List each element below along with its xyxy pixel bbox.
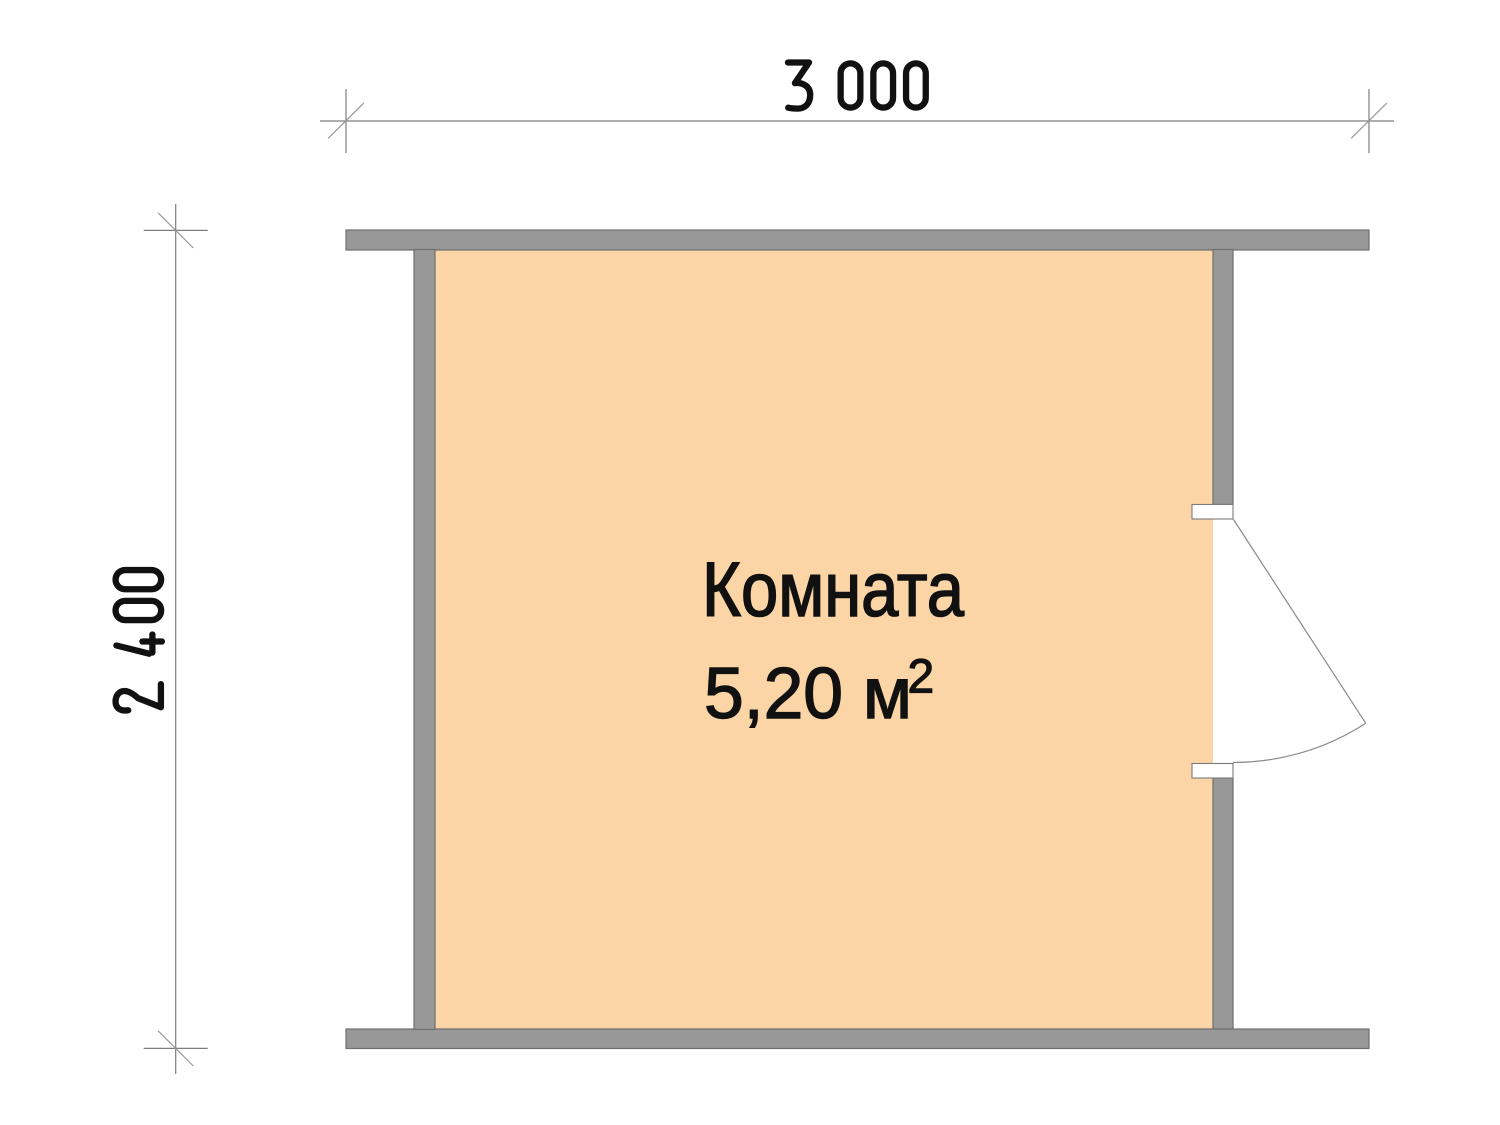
svg-text:5,20 м: 5,20 м [704,654,912,734]
svg-text:2: 2 [908,651,935,704]
svg-text:Комната: Комната [702,547,964,633]
